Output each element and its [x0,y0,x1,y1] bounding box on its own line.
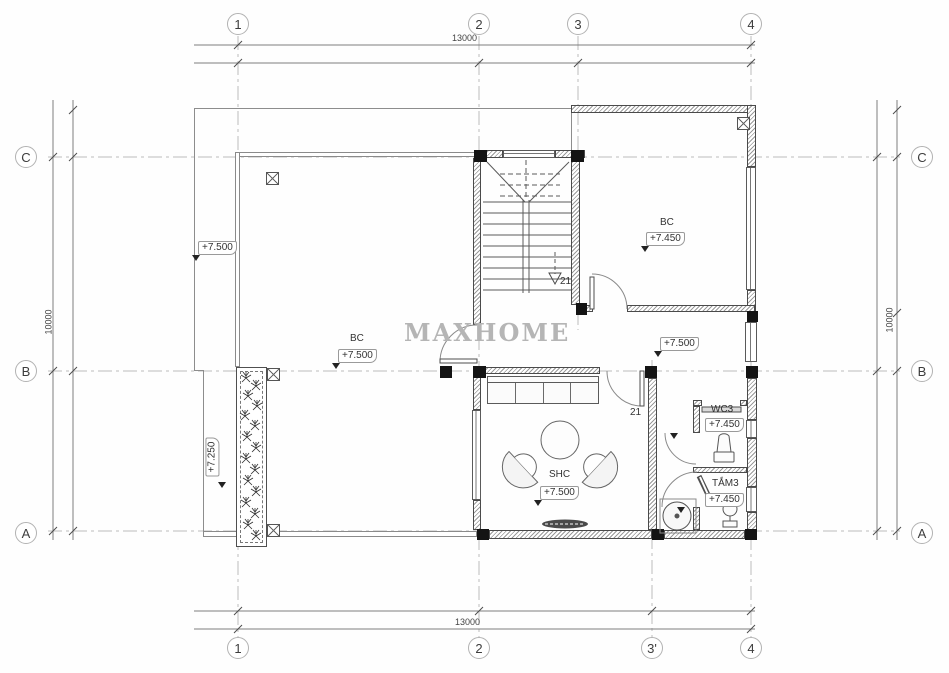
grid-bubble-bottom-2: 2 [468,637,490,659]
grid-bubble-right-B: B [911,360,933,382]
grid-bubble-top-1: 1 [227,13,249,35]
grid-bubble-bottom-1: 1 [227,637,249,659]
room-label-terrace: BC [350,333,364,344]
grid-bubble-left-A: A [15,522,37,544]
room-label-bath: TẮM3 [712,478,739,489]
door-leaf [440,359,477,363]
level-flag-living: +7.500 [540,486,579,500]
door-arc-balcony [592,274,627,309]
door-arc-living [607,371,642,406]
grid-bubble-right-A: A [911,522,933,544]
door-leaf [590,277,594,309]
level-arrow-icon [654,351,662,357]
room-label-wc: WC3 [711,404,733,415]
door-leaf [640,371,644,406]
level-arrow-icon [670,433,678,439]
level-arrow-icon [218,482,226,488]
coffee-table-icon [541,421,579,459]
toilet-icon [714,434,734,462]
grid-bubble-bottom-4: 4 [740,637,762,659]
grid-bubble-top-4: 4 [740,13,762,35]
floor-plan-sheet: MAXHOME 1 2 3 4 1 2 3' 4 C B A C B A 130… [0,0,949,673]
sofa-seats [488,383,598,403]
grid-bubble-left-C: C [15,146,37,168]
sofa [487,376,599,404]
level-flag-bath: +7.450 [705,493,744,507]
grid-bubble-bottom-3p: 3' [641,637,663,659]
room-label-balcony: BC [660,217,674,228]
armchair-right-icon [573,443,627,497]
stair-step-count-tag: 21 [560,276,571,287]
washing-machine-icon [660,499,696,533]
level-arrow-icon [641,246,649,252]
watermark-logo: MAXHOME [404,318,570,347]
door-tag-living: 21 [630,407,641,418]
dim-right-overall: 10000 [885,307,895,332]
dim-top-overall: 13000 [452,33,477,43]
level-flag-planter: +7.250 [205,438,219,477]
level-flag-terrace: +7.500 [338,349,377,363]
staircase [483,160,571,293]
dim-left-overall: 10000 [44,309,54,334]
grid-bubble-left-B: B [15,360,37,382]
ac-unit-icon [542,520,588,529]
room-label-living: SHC [549,469,570,480]
level-flag-terrace-upper: +7.500 [198,241,237,255]
grid-bubble-right-C: C [911,146,933,168]
level-arrow-icon [192,255,200,261]
level-flag-wc: +7.450 [705,418,744,432]
dim-bottom-overall: 13000 [455,617,480,627]
level-flag-balcony: +7.450 [646,232,685,246]
level-arrow-icon [332,363,340,369]
plants [240,372,262,540]
level-flag-hall: +7.500 [660,337,699,351]
level-arrow-icon [534,500,542,506]
grid-bubble-top-3: 3 [567,13,589,35]
grid-bubble-top-2: 2 [468,13,490,35]
level-arrow-icon [677,507,685,513]
